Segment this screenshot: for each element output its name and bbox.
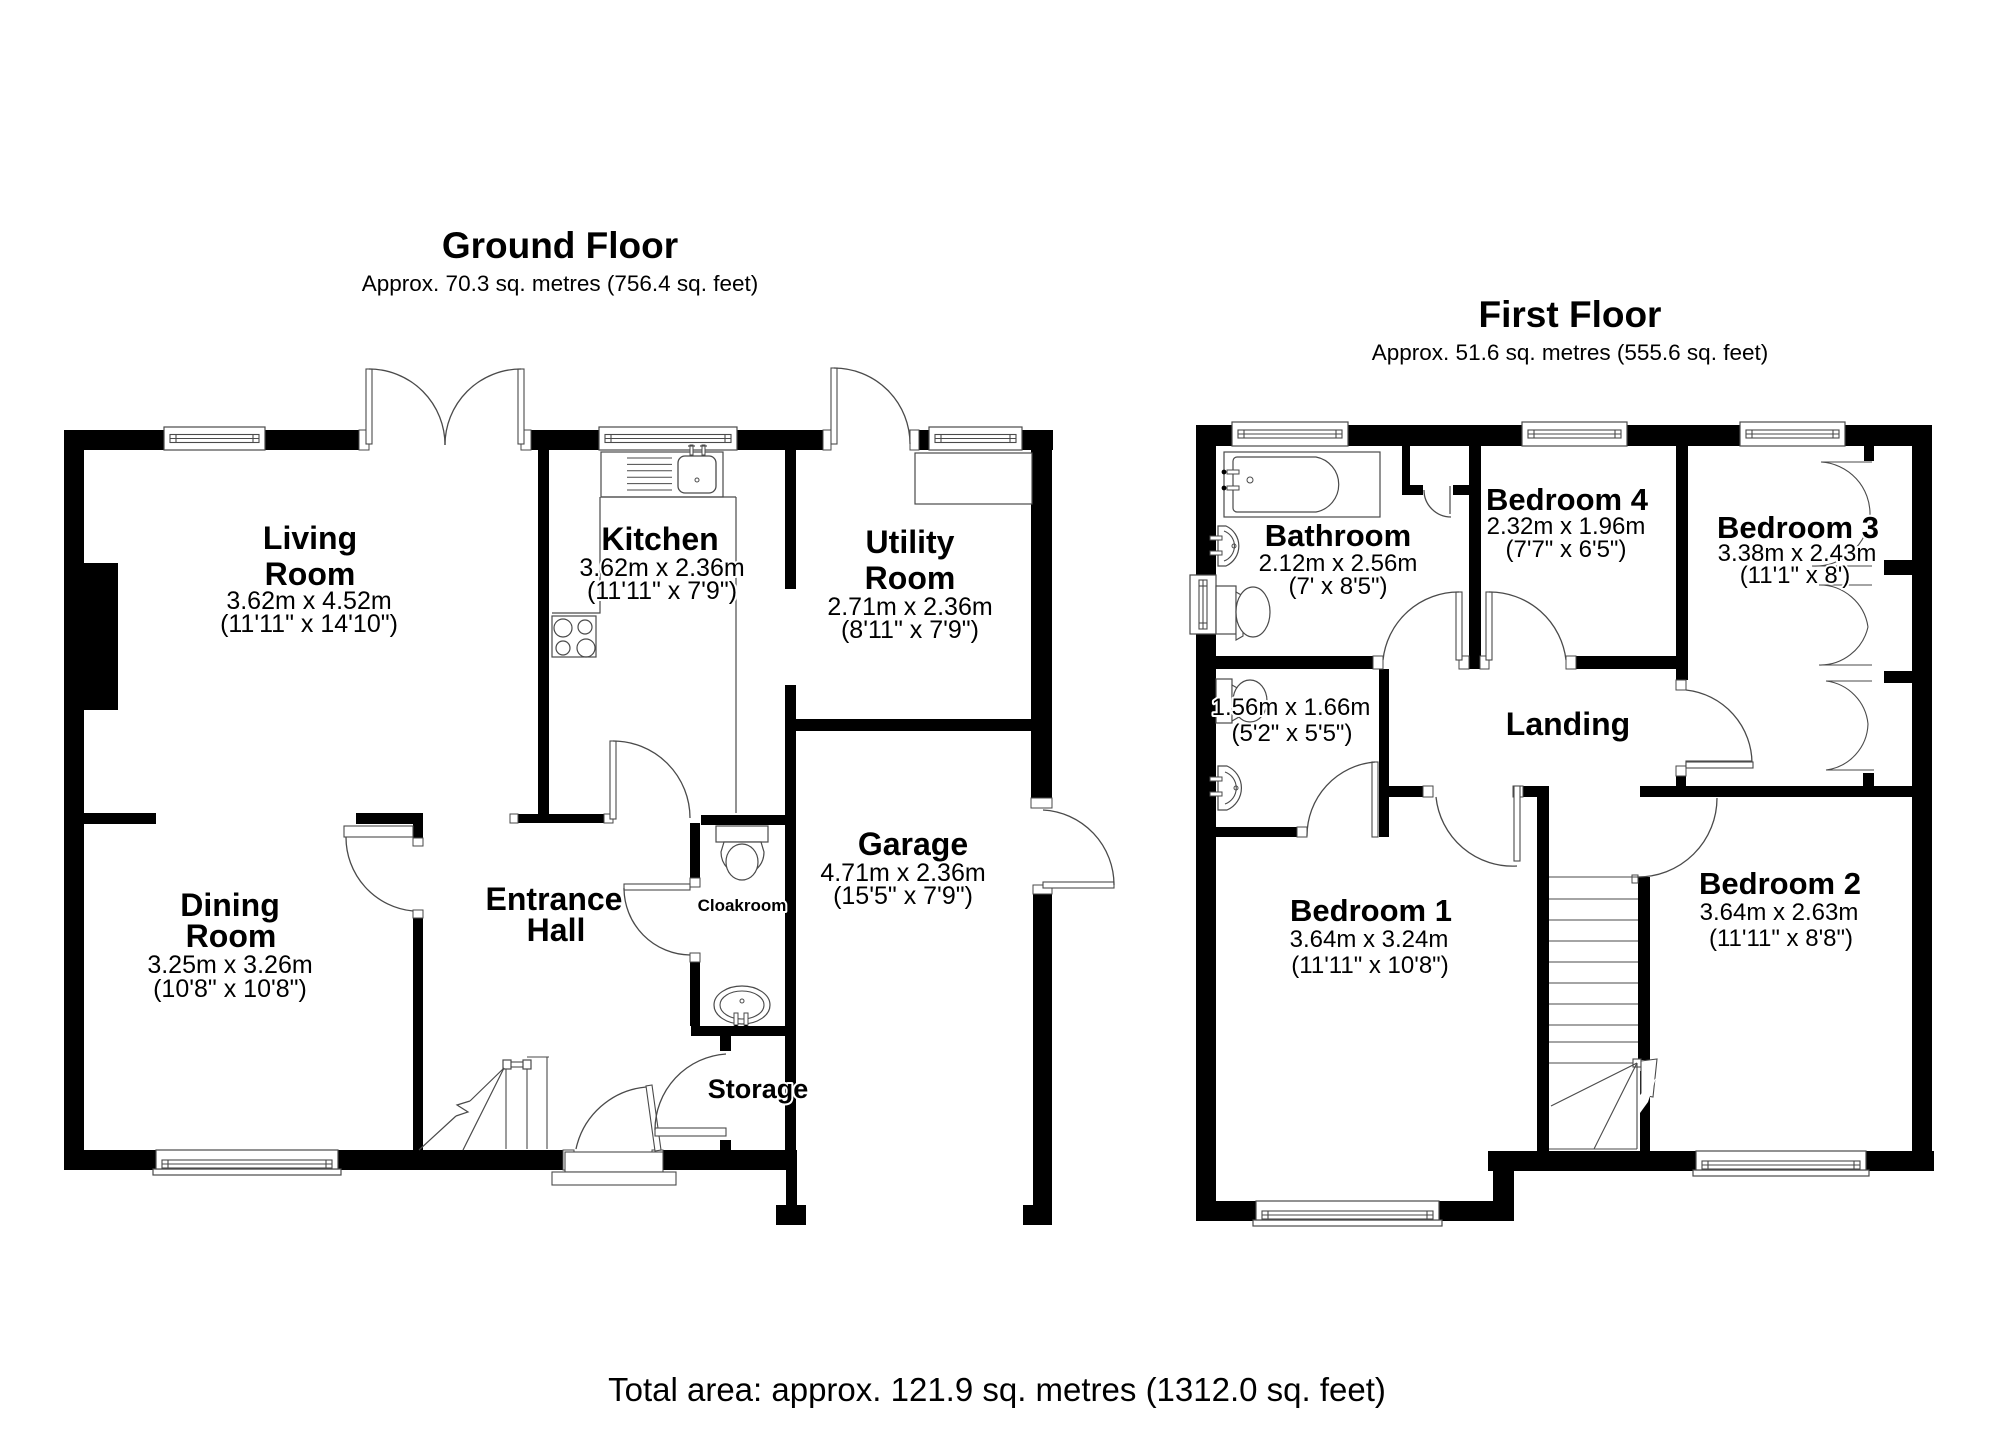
- svg-text:(7' x 8'5"): (7' x 8'5"): [1288, 573, 1387, 600]
- svg-text:(11'1" x 8'): (11'1" x 8'): [1740, 562, 1851, 589]
- svg-text:Approx. 70.3 sq. metres (756.4: Approx. 70.3 sq. metres (756.4 sq. feet): [362, 271, 758, 296]
- svg-text:Bedroom 1: Bedroom 1: [1290, 893, 1452, 928]
- svg-text:(10'8" x 10'8"): (10'8" x 10'8"): [153, 975, 307, 1003]
- svg-text:(11'11" x 14'10"): (11'11" x 14'10"): [220, 610, 398, 638]
- svg-text:Bedroom 2: Bedroom 2: [1699, 866, 1861, 901]
- svg-text:Cloakroom: Cloakroom: [698, 896, 787, 915]
- svg-text:(15'5" x 7'9"): (15'5" x 7'9"): [833, 882, 973, 910]
- svg-text:Bedroom 4: Bedroom 4: [1486, 482, 1649, 517]
- svg-text:Ground Floor: Ground Floor: [442, 225, 678, 266]
- svg-text:(11'11" x 7'9"): (11'11" x 7'9"): [587, 577, 737, 605]
- svg-text:(7'7" x 6'5"): (7'7" x 6'5"): [1506, 536, 1627, 563]
- svg-text:Hall: Hall: [527, 912, 586, 948]
- svg-text:Landing: Landing: [1506, 706, 1630, 742]
- svg-text:Bathroom: Bathroom: [1265, 518, 1411, 553]
- svg-text:Utility: Utility: [866, 524, 955, 560]
- svg-text:1.56m x 1.66m: 1.56m x 1.66m: [1212, 694, 1371, 721]
- svg-text:Room: Room: [865, 560, 956, 596]
- svg-text:Living: Living: [263, 520, 357, 556]
- svg-text:(8'11" x 7'9"): (8'11" x 7'9"): [841, 616, 979, 644]
- svg-text:Total area: approx. 121.9 sq.: Total area: approx. 121.9 sq. metres (13…: [608, 1371, 1386, 1408]
- svg-text:Storage: Storage: [708, 1074, 809, 1104]
- svg-text:Room: Room: [186, 918, 277, 954]
- svg-text:3.64m x 2.63m: 3.64m x 2.63m: [1700, 899, 1859, 926]
- svg-text:Garage: Garage: [858, 826, 968, 862]
- svg-text:(11'11" x 10'8"): (11'11" x 10'8"): [1291, 952, 1448, 979]
- svg-text:Approx. 51.6 sq. metres (555.6: Approx. 51.6 sq. metres (555.6 sq. feet): [1372, 340, 1768, 365]
- svg-text:First Floor: First Floor: [1479, 294, 1662, 335]
- svg-text:3.64m x 3.24m: 3.64m x 3.24m: [1290, 926, 1449, 953]
- svg-text:Kitchen: Kitchen: [601, 521, 718, 557]
- svg-text:(11'11" x 8'8"): (11'11" x 8'8"): [1709, 925, 1853, 952]
- svg-text:(5'2" x 5'5"): (5'2" x 5'5"): [1232, 720, 1353, 747]
